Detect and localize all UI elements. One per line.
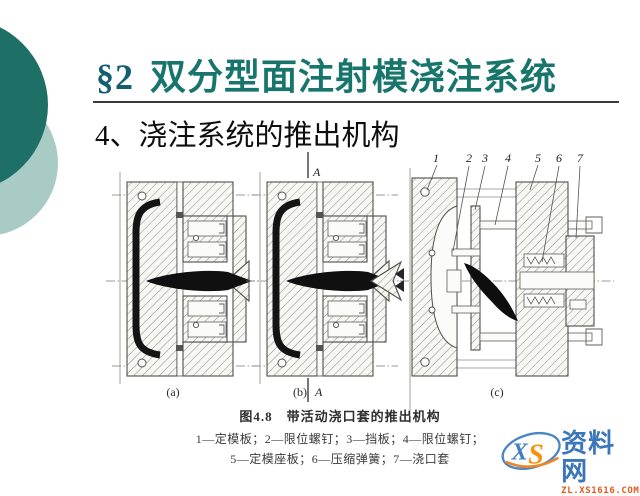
watermark-logo-icon: X S [499, 423, 565, 477]
figure-legend-line-2: 5—定模座板；6—压缩弹簧；7—浇口套 [130, 450, 550, 467]
view-label-b: (b) [293, 385, 307, 399]
part-number-7: 7 [577, 151, 584, 165]
figure-caption-block: 图4.8 带活动浇口套的推出机构 1—定模板；2—限位螺钉；3—挡板；4—限位螺… [130, 406, 550, 467]
part-number-3: 3 [481, 151, 488, 165]
watermark-logo-s: S [528, 440, 544, 471]
figure-legend-line-1: 1—定模板；2—限位螺钉；3—挡板；4—限位螺钉； [130, 430, 550, 447]
slide-title: §2双分型面注射模浇注系统 [96, 48, 557, 100]
watermark-text: 资料网 ZL.XS1616.COM [561, 429, 640, 496]
part-number-2: 2 [466, 151, 472, 165]
view-label-c: (c) [490, 385, 503, 399]
part-number-4: 4 [505, 151, 511, 165]
watermark-site-name: 资料网 [561, 429, 640, 485]
view-label-a: (a) [166, 385, 179, 399]
section-mark-bottom: A [314, 385, 323, 399]
part-number-1: 1 [433, 151, 439, 165]
mold-view-c [395, 165, 614, 418]
watermark-logo-x: X [511, 439, 529, 466]
part-number-5: 5 [535, 151, 541, 165]
watermark-site-url: ZL.XS1616.COM [561, 486, 640, 496]
slide-title-text: 双分型面注射模浇注系统 [150, 57, 557, 97]
slide-title-section-number: §2 [96, 57, 134, 97]
watermark: X S 资料网 ZL.XS1616.COM [499, 423, 640, 477]
mold-view-a [106, 172, 262, 384]
slide-subtitle: 4、浇注系统的推出机构 [95, 112, 400, 154]
section-mark-top: A [312, 165, 321, 179]
title-underline [93, 101, 619, 103]
figure-caption: 图4.8 带活动浇口套的推出机构 [130, 406, 550, 425]
part-number-6: 6 [556, 151, 562, 165]
